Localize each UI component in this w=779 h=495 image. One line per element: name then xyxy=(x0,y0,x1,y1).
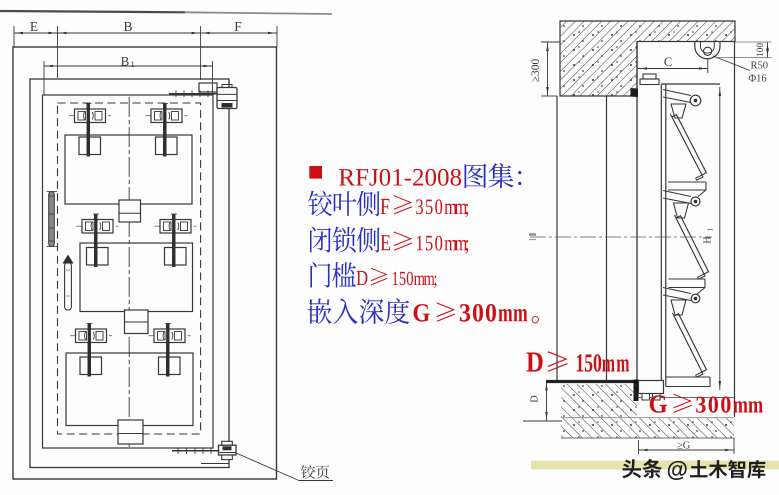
svg-text:≥300: ≥300 xyxy=(530,58,542,82)
svg-text:100: 100 xyxy=(756,43,766,58)
svg-text:B: B xyxy=(123,19,132,34)
svg-text:E: E xyxy=(30,19,38,34)
svg-text:F: F xyxy=(234,19,242,34)
svg-text:R50: R50 xyxy=(751,61,769,72)
svg-text:1: 1 xyxy=(707,228,715,232)
svg-text:≥G: ≥G xyxy=(677,441,691,452)
svg-text:Φ16: Φ16 xyxy=(749,74,767,85)
svg-text:B: B xyxy=(121,54,130,69)
svg-text:H: H xyxy=(703,236,714,243)
svg-text:C: C xyxy=(664,55,672,69)
svg-text:1: 1 xyxy=(131,59,135,69)
svg-text:D: D xyxy=(530,395,541,402)
